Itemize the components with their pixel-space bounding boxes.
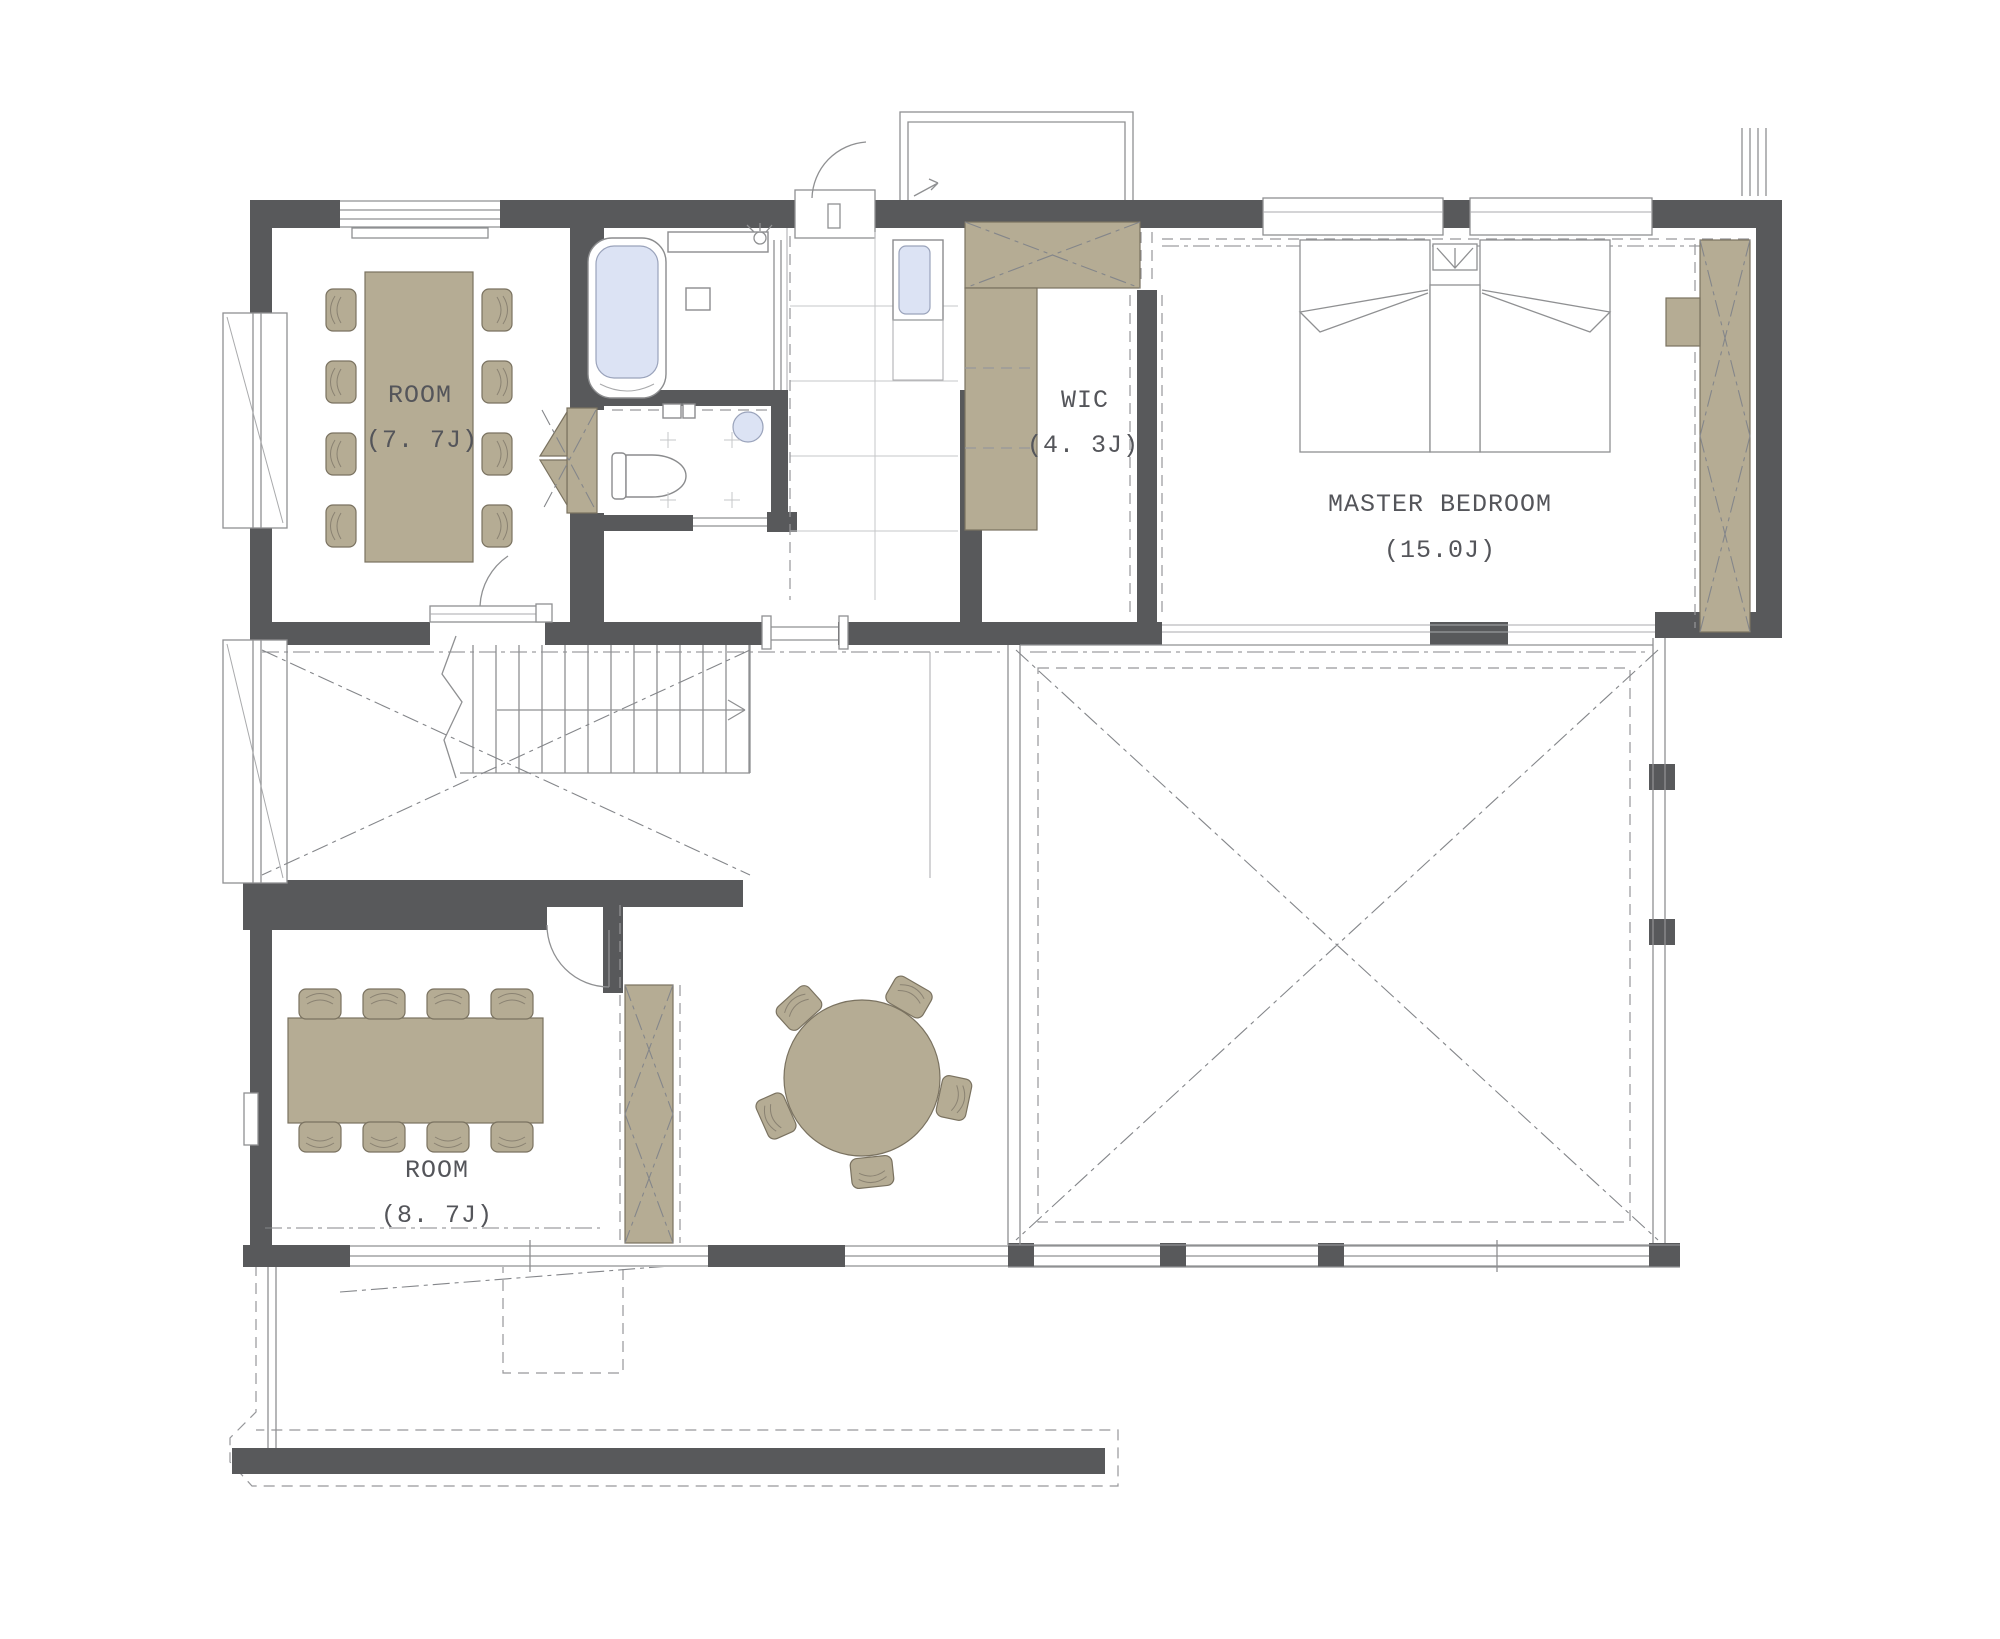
bed-icon [1300,240,1430,452]
atrium-x-mark [1016,650,1658,1240]
hall-closet-icon [620,905,680,1243]
floor-plan-drawing [0,0,2000,1639]
floor-plan: ROOM (7. 7J) WIC (4. 3J) MASTER BEDROOM … [0,0,2000,1639]
balcony-top-icon [900,112,1133,203]
bathroom [588,223,772,398]
chair-icon [326,505,356,547]
room-87-label: ROOM [405,1158,469,1183]
room-77 [326,272,597,562]
room-77-area: (7. 7J) [366,428,478,453]
room-87-area: (8. 7J) [381,1203,493,1228]
wic-area: (4. 3J) [1027,433,1139,458]
entrance-door-icon [795,142,875,238]
chair-icon [326,289,356,331]
chair-icon [491,989,533,1019]
stair-hall [262,636,1000,878]
chair-icon [427,989,469,1019]
dining-table-icon [365,272,473,562]
master-closet-icon [1695,240,1750,632]
chair-icon [326,361,356,403]
atrium-void [1008,638,1680,1267]
window-room77-top-icon [340,200,500,238]
chair-icon [427,1122,469,1152]
chair-icon [482,361,512,403]
chair-icon [482,433,512,475]
chair-icon [363,1122,405,1152]
nightstand-icon [1666,298,1700,346]
chair-icon [935,1074,973,1121]
bed-icon [1480,240,1610,452]
staircase-icon [442,636,750,778]
dining-table-icon [288,1018,543,1123]
faucet-icon [663,404,681,418]
window-room87-left-icon [244,1093,258,1145]
tall-cabinet-icon [893,240,943,380]
bathtub-icon [588,238,666,398]
window-room77-left-icon [223,313,287,528]
chair-icon [850,1155,895,1189]
sliding-door-bath-icon [774,240,781,390]
sliding-door-toilet-icon [693,518,767,526]
wic-closet-icon [965,288,1037,530]
toilet-room [612,404,771,508]
faucet-icon [683,404,695,418]
chair-icon [299,989,341,1019]
free-space [754,974,973,1190]
balcony-bottom-outline [230,1247,1118,1486]
room-77-label: ROOM [388,383,452,408]
balcony-parapet-wall [232,1448,1105,1474]
sliding-door-room77-icon [430,556,552,622]
chair-icon [326,433,356,475]
corridor [787,228,958,600]
master-bedroom-area: (15.0J) [1384,538,1496,563]
wic-label: WIC [1061,388,1109,413]
window-stairhall-left-icon [223,640,287,883]
round-table-icon [784,1000,940,1156]
bath-counter-icon [668,232,768,252]
wall-lamp-icon [1433,244,1477,270]
chair-icon [482,505,512,547]
chair-icon [491,1122,533,1152]
bed-runner [1430,285,1480,452]
master-bedroom-label: MASTER BEDROOM [1328,492,1552,517]
folding-closet-icon [540,408,597,513]
swing-door-room87-icon [547,925,609,987]
washbasin-icon [733,412,763,442]
chair-icon [299,1122,341,1152]
toilet-icon [612,453,686,499]
chair-icon [482,289,512,331]
opening-corridor-stairs [762,616,848,649]
hatch-marks-icon [1742,128,1766,196]
chair-icon [363,989,405,1019]
stair-void-x [262,650,750,875]
bath-stool-icon [686,288,710,310]
master-bedroom [1162,239,1750,632]
wic [965,222,1162,615]
wic-door-dashes [1141,232,1152,286]
